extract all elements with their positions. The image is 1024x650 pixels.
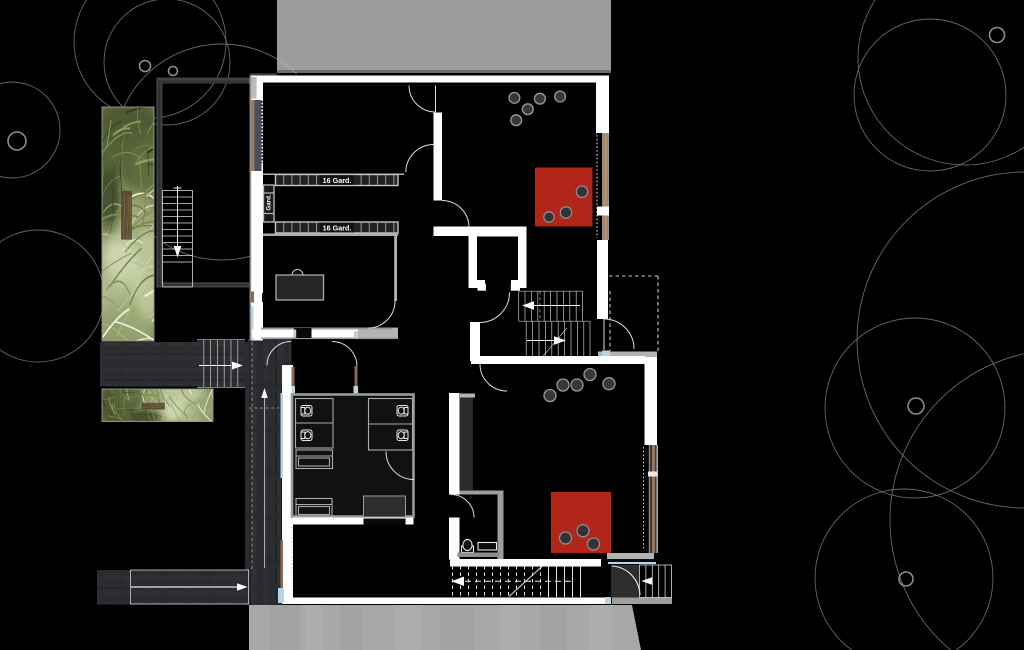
- svg-text:Gard.: Gard.: [266, 194, 273, 210]
- svg-text:16 Gard.: 16 Gard.: [323, 176, 352, 185]
- svg-text:16 Gard.: 16 Gard.: [323, 224, 352, 233]
